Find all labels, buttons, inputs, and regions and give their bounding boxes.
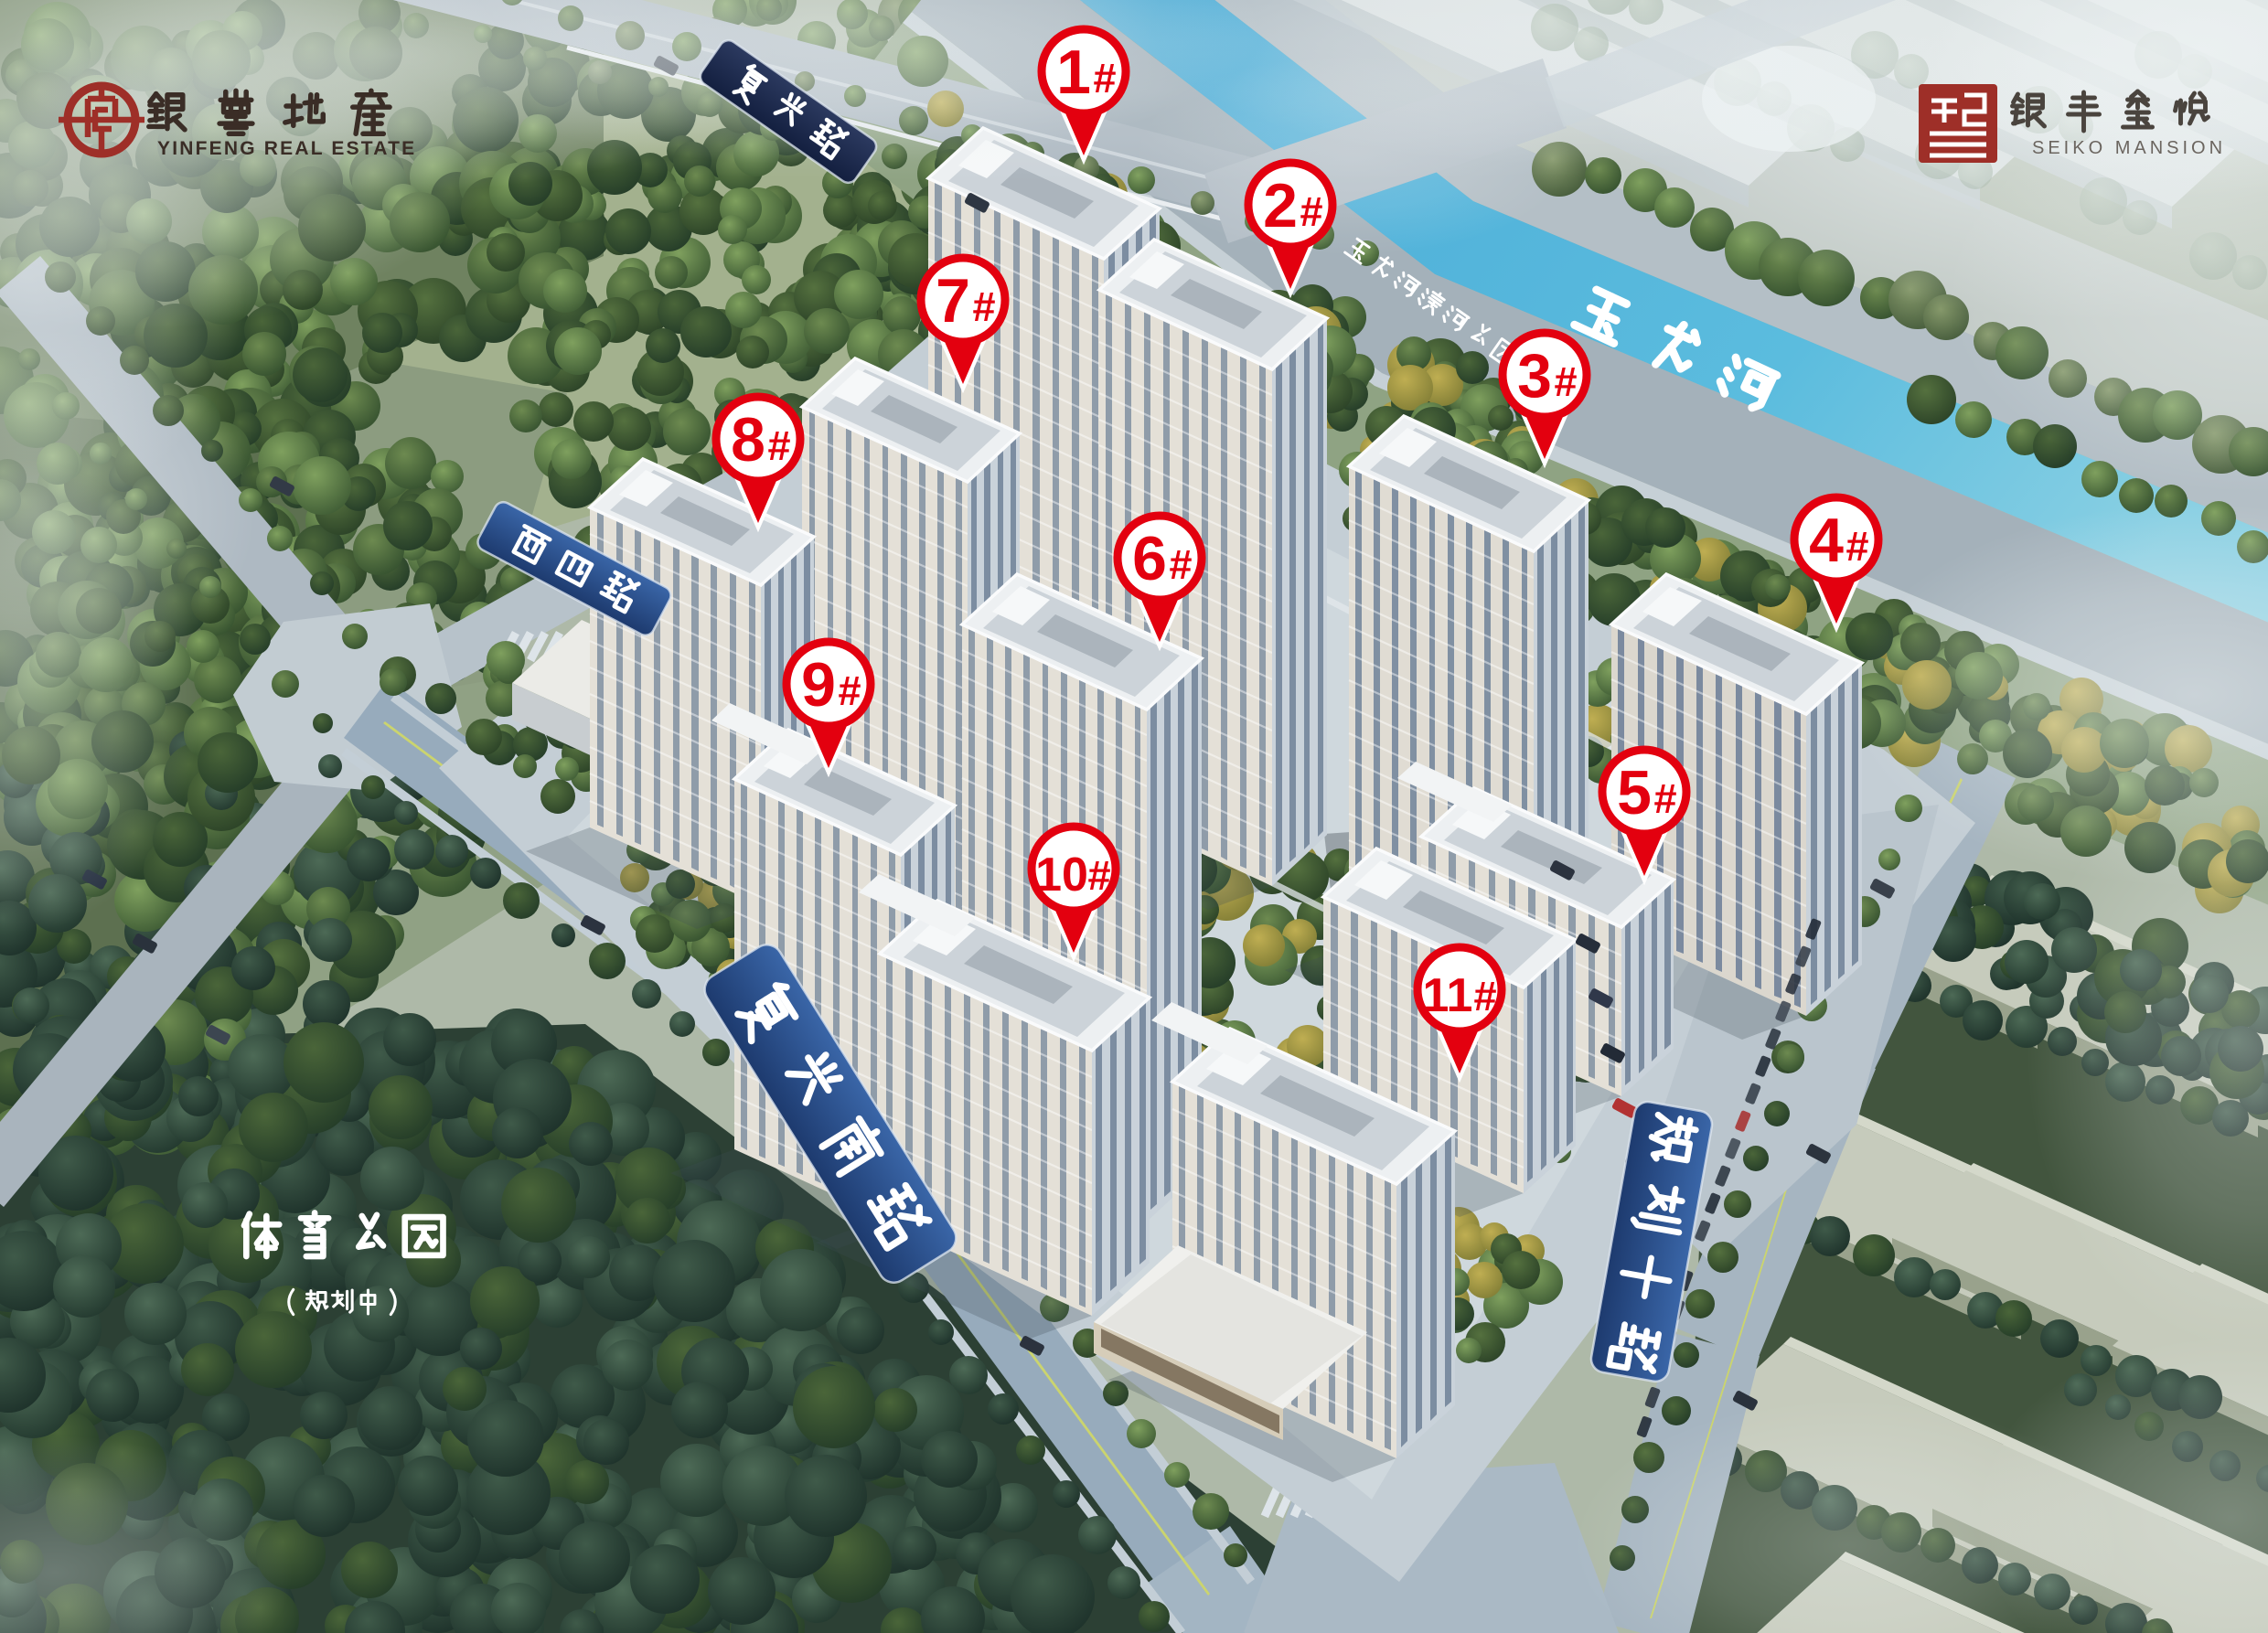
svg-text:2: 2	[1263, 171, 1298, 240]
svg-text:4: 4	[1809, 506, 1844, 575]
svg-text:#: #	[1087, 852, 1110, 899]
svg-text:6: 6	[1132, 524, 1167, 593]
svg-text:1: 1	[1056, 37, 1091, 107]
svg-text:#: #	[1473, 973, 1496, 1019]
svg-text:#: #	[1653, 775, 1676, 822]
svg-text:#: #	[1845, 523, 1868, 570]
svg-text:7: 7	[936, 266, 970, 336]
svg-text:10: 10	[1035, 849, 1088, 902]
svg-text:#: #	[1093, 55, 1116, 101]
svg-text:#: #	[1554, 358, 1577, 405]
svg-text:11: 11	[1423, 969, 1473, 1022]
svg-text:YINFENG REAL ESTATE: YINFENG REAL ESTATE	[157, 138, 416, 159]
svg-text:3: 3	[1517, 341, 1552, 411]
svg-text:#: #	[1169, 541, 1192, 588]
svg-text:5: 5	[1617, 758, 1652, 827]
svg-text:SEIKO MANSION: SEIKO MANSION	[2032, 138, 2226, 158]
svg-text:#: #	[767, 422, 790, 469]
svg-text:#: #	[1300, 188, 1322, 235]
svg-text:#: #	[972, 283, 995, 330]
svg-text:8: 8	[731, 405, 765, 475]
svg-text:#: #	[838, 667, 861, 714]
svg-text:9: 9	[801, 650, 836, 720]
